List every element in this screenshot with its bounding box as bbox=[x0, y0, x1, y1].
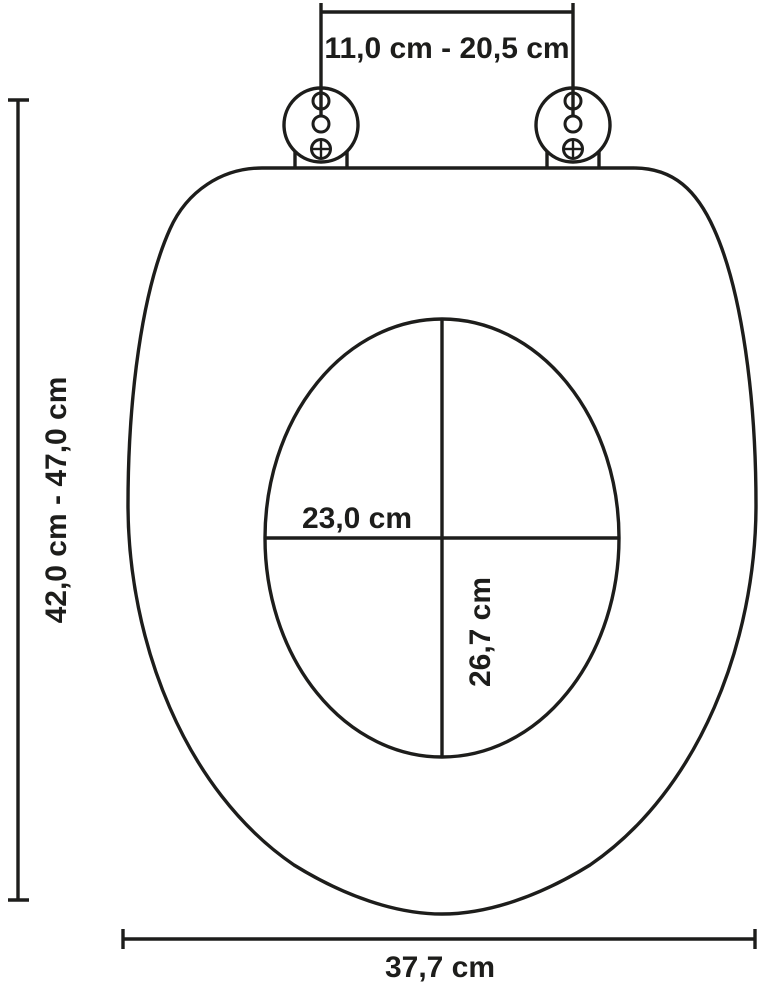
hinge-distance-label: 11,0 cm - 20,5 cm bbox=[324, 32, 569, 66]
hinge-left-hole-middle bbox=[313, 116, 329, 132]
seat-diagram-linework bbox=[0, 0, 764, 994]
inner-width-label: 23,0 cm bbox=[302, 502, 412, 536]
hinge-right-hole-middle bbox=[565, 116, 581, 132]
hinge-left-screw-icon bbox=[312, 140, 331, 159]
hinge-right-screw-icon bbox=[564, 140, 583, 159]
overall-length-dimension bbox=[8, 100, 29, 900]
hinge-left bbox=[284, 3, 358, 169]
seat-dimension-diagram: 11,0 cm - 20,5 cm 42,0 cm - 47,0 cm 23,0… bbox=[0, 0, 764, 994]
hinge-right bbox=[536, 3, 610, 169]
inner-depth-label: 26,7 cm bbox=[464, 577, 498, 687]
seat-width-label: 37,7 cm bbox=[385, 951, 495, 985]
seat-width-dimension bbox=[123, 929, 755, 949]
overall-length-label: 42,0 cm - 47,0 cm bbox=[40, 377, 74, 624]
